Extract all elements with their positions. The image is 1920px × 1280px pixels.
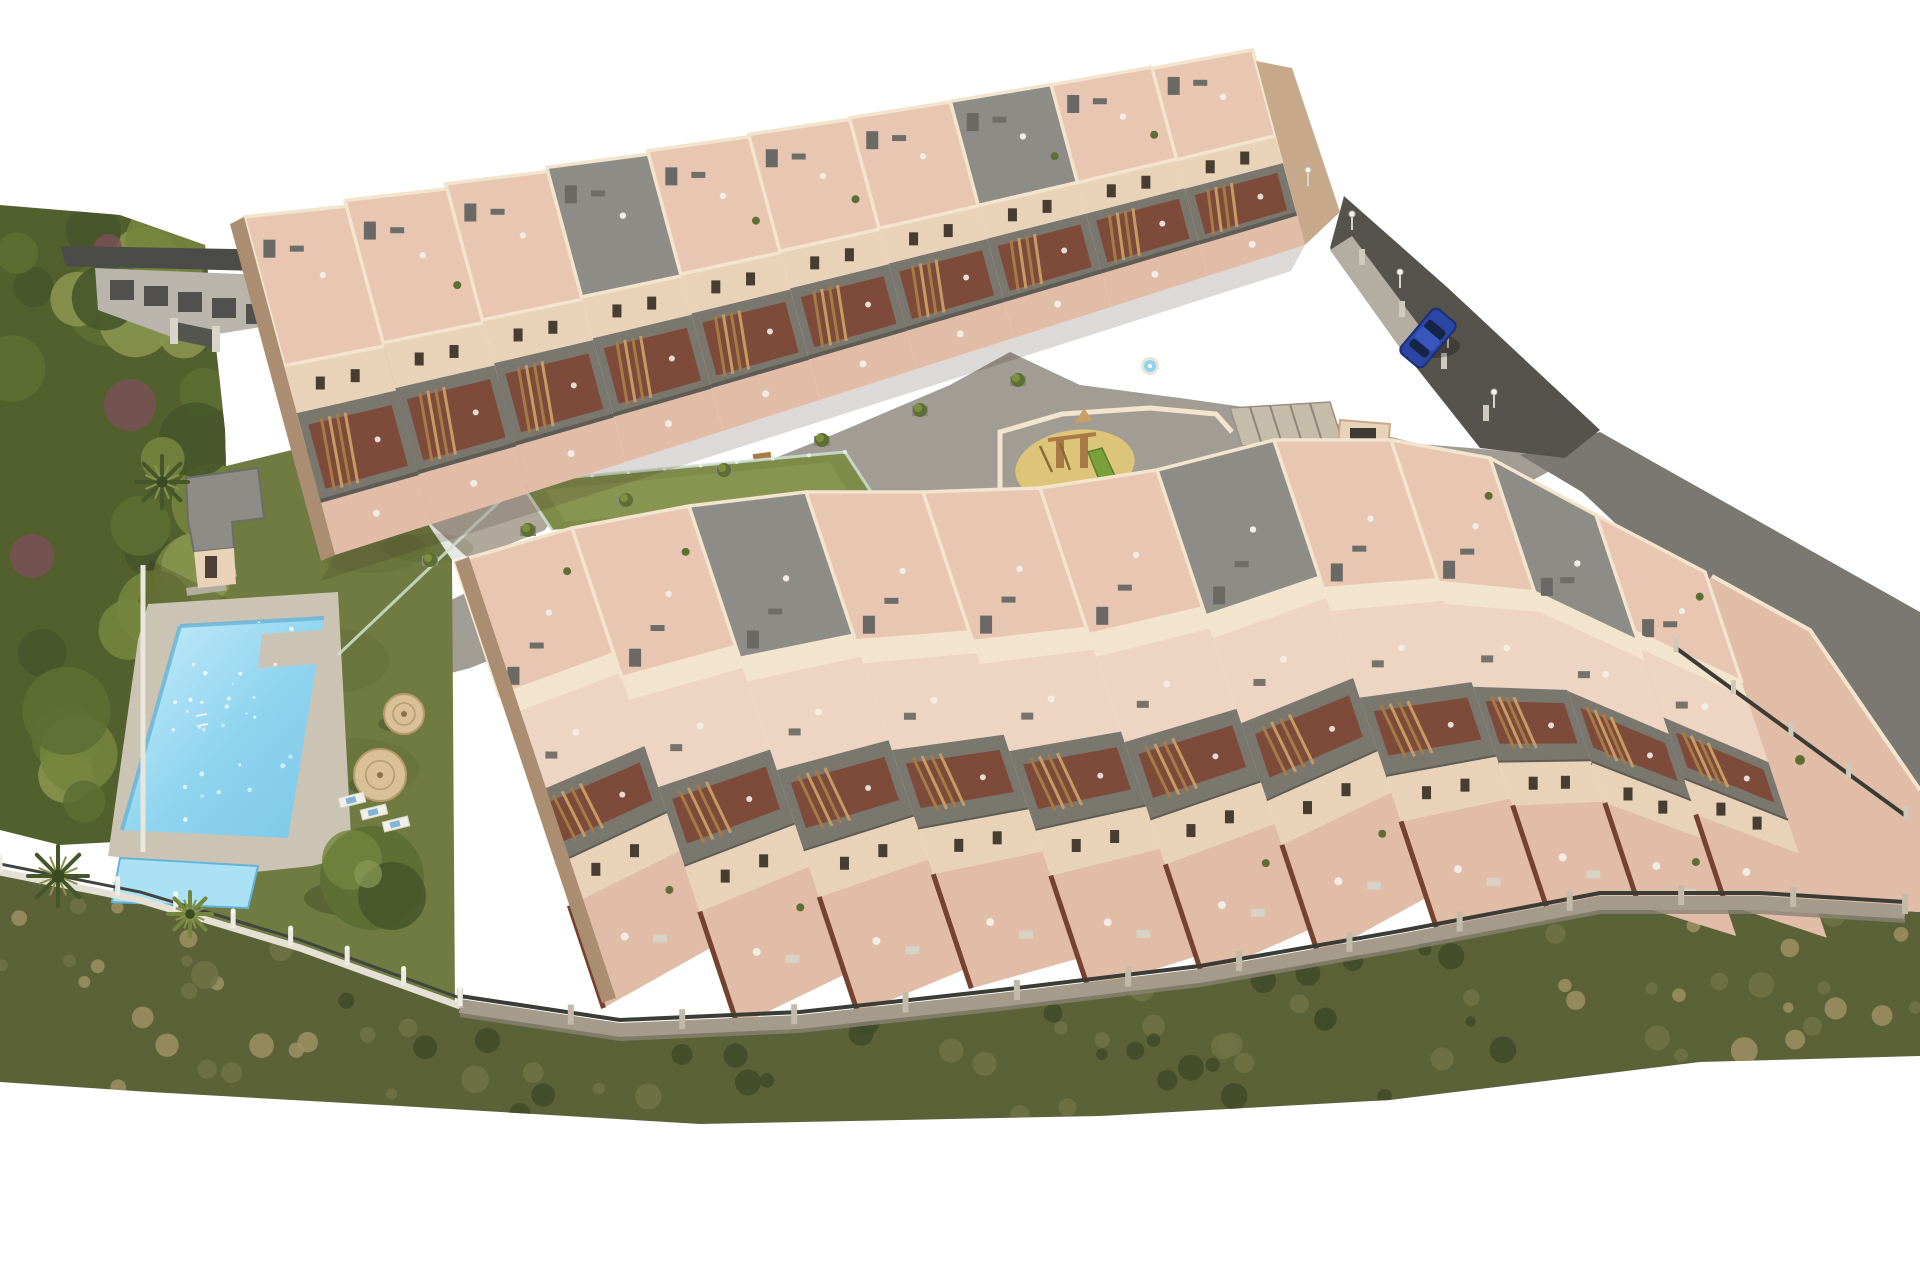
planter-shrub-light xyxy=(424,554,432,562)
scrub-tuft xyxy=(760,1073,774,1087)
perimeter-road xyxy=(1330,196,1600,458)
scrub-tuft xyxy=(509,1103,530,1124)
garden-furniture xyxy=(621,933,629,941)
terrace-plant xyxy=(796,903,804,911)
garden-furniture xyxy=(1137,930,1151,938)
sparkle xyxy=(289,627,294,632)
terrace-furniture xyxy=(1280,656,1287,663)
wall-post xyxy=(1678,885,1684,905)
roof-furniture xyxy=(1560,577,1574,583)
terrace-plant xyxy=(1378,830,1386,838)
window xyxy=(759,854,768,867)
roof-furniture xyxy=(1574,560,1580,566)
terrace-furniture xyxy=(697,723,704,730)
wall-post xyxy=(1902,894,1908,914)
garden-furniture xyxy=(872,937,880,945)
scrub-tuft xyxy=(1314,1010,1335,1031)
terrace-furniture xyxy=(1701,703,1708,710)
window xyxy=(316,377,325,390)
garden-furniture xyxy=(1652,862,1660,870)
roof-furniture xyxy=(1020,133,1026,139)
chimney xyxy=(866,131,878,149)
scrub-tuft xyxy=(78,976,90,988)
scrub-tuft xyxy=(1431,1047,1454,1070)
purple-shrub xyxy=(104,379,156,431)
balcony-furniture xyxy=(1212,753,1218,759)
window xyxy=(351,369,360,382)
roof-furniture xyxy=(320,272,326,278)
gate-pillar xyxy=(212,326,220,352)
palm-crown xyxy=(185,909,195,919)
sparkle xyxy=(280,763,285,768)
scrub-tuft xyxy=(531,1083,555,1107)
window xyxy=(1240,152,1249,165)
road-wall-post xyxy=(1359,249,1365,265)
chimney xyxy=(364,222,376,240)
scrub-tuft xyxy=(386,1088,397,1099)
scrub-tuft xyxy=(1234,1053,1254,1073)
roof-furniture xyxy=(1118,585,1132,591)
white-fence-post xyxy=(231,912,236,928)
right-fence-post xyxy=(1731,680,1736,694)
roof-furniture xyxy=(892,135,906,141)
palm-crown xyxy=(156,476,167,487)
scrub-tuft xyxy=(1058,1098,1076,1116)
wall-panel xyxy=(144,286,168,306)
window xyxy=(1422,786,1431,799)
window xyxy=(909,232,918,245)
terrace-furniture xyxy=(1503,645,1510,652)
window xyxy=(711,280,720,293)
patio-furniture xyxy=(859,360,866,367)
sparkle xyxy=(221,723,225,727)
terrace-furniture xyxy=(789,728,801,735)
wall-post xyxy=(1457,912,1463,932)
terrace-plant xyxy=(1692,858,1700,866)
post-cap xyxy=(115,876,120,881)
window xyxy=(514,328,523,341)
scrub-tuft xyxy=(132,1006,154,1028)
roof-furniture xyxy=(665,591,671,597)
terrace-furniture xyxy=(1602,671,1609,678)
sparkle xyxy=(247,788,252,793)
chimney xyxy=(565,185,577,203)
window xyxy=(810,256,819,269)
scrub-tuft xyxy=(1672,988,1686,1002)
planter-shrub-light xyxy=(914,404,922,412)
scrub-tuft xyxy=(635,1084,661,1110)
scrub-tuft xyxy=(1096,1048,1108,1060)
scrub-tuft xyxy=(1825,997,1847,1019)
sparkle xyxy=(203,671,207,675)
roof-furniture xyxy=(1235,561,1249,567)
roof-furniture xyxy=(1016,566,1022,572)
roof-plant xyxy=(1051,152,1059,160)
pool-house-door xyxy=(205,556,217,578)
white-fence-post xyxy=(288,929,293,945)
scrub-tuft xyxy=(1206,1058,1220,1072)
terrace-furniture xyxy=(1021,713,1033,720)
chimney xyxy=(629,649,641,667)
balcony-furniture xyxy=(1647,752,1653,758)
roof-plant xyxy=(1150,131,1158,139)
window xyxy=(944,224,953,237)
scrub-tuft xyxy=(1010,1105,1030,1125)
garden-furniture xyxy=(653,935,667,943)
street-lamp xyxy=(1397,269,1403,275)
wall-panel xyxy=(178,292,202,312)
scrub-tuft xyxy=(1566,991,1585,1010)
window xyxy=(415,352,424,365)
roof-furniture xyxy=(792,154,806,160)
terrace-plant xyxy=(1262,859,1270,867)
roof-plant xyxy=(1485,492,1493,500)
planter-shrub-light xyxy=(1012,374,1020,382)
window xyxy=(840,857,849,870)
sparkle xyxy=(188,698,192,702)
balcony-furniture xyxy=(865,301,871,307)
palm-tree xyxy=(168,892,212,936)
sparkle xyxy=(238,763,241,766)
chimney xyxy=(1067,95,1079,113)
pool-step xyxy=(258,630,322,668)
scrub-tuft xyxy=(11,910,27,926)
garden-furniture xyxy=(1454,865,1462,873)
scrub-tuft xyxy=(1558,979,1571,992)
garden-furniture xyxy=(786,955,800,963)
roof-plant xyxy=(752,217,760,225)
roof-furniture xyxy=(691,172,705,178)
sparkle xyxy=(225,705,229,709)
white-fence-post xyxy=(115,880,120,896)
window xyxy=(1008,208,1017,221)
garden-furniture xyxy=(905,946,919,954)
white-fence-post xyxy=(458,990,463,1006)
balcony-furniture xyxy=(571,382,577,388)
scrub-tuft xyxy=(1147,1033,1160,1046)
scrub-tuft xyxy=(1290,994,1309,1013)
balcony-furniture xyxy=(1159,221,1165,227)
terrace-furniture xyxy=(1372,660,1384,667)
roof-furniture xyxy=(1002,597,1016,603)
roof-furniture xyxy=(520,232,526,238)
glass-post xyxy=(735,460,739,464)
palm-tree xyxy=(136,456,188,508)
tree-blob xyxy=(22,667,110,755)
terrace-furniture xyxy=(1481,655,1493,662)
scrub-tuft xyxy=(1645,1025,1670,1050)
window xyxy=(591,863,600,876)
roof-furniture xyxy=(491,209,505,215)
sparkle xyxy=(183,785,187,789)
roof-furniture xyxy=(992,117,1006,123)
balcony-furniture xyxy=(746,796,752,802)
sparkle xyxy=(200,701,203,704)
planter-shrub-light xyxy=(620,494,628,502)
sparkle xyxy=(253,716,256,719)
sparkle xyxy=(227,697,231,701)
post-cap xyxy=(231,908,236,913)
chimney xyxy=(980,616,992,634)
road-wall-post xyxy=(1483,405,1489,421)
balcony-furniture xyxy=(619,792,625,798)
glass-post xyxy=(771,457,775,461)
wall-post xyxy=(903,992,909,1012)
right-fence-post xyxy=(1674,638,1679,652)
roof-furniture xyxy=(1367,516,1373,522)
scrub-tuft xyxy=(1465,1016,1475,1026)
garden-tree-glint xyxy=(354,860,382,888)
roof-furniture xyxy=(591,190,605,196)
scrub-tuft xyxy=(1781,939,1800,958)
roof-furniture xyxy=(620,212,626,218)
patio-furniture xyxy=(1249,241,1256,248)
window xyxy=(1658,801,1667,814)
window xyxy=(1110,830,1119,843)
balcony-furniture xyxy=(669,355,675,361)
scrub-tuft xyxy=(181,983,197,999)
window xyxy=(647,297,656,310)
sparkle xyxy=(173,700,177,704)
sparkle xyxy=(288,754,293,759)
garden-furniture xyxy=(753,948,761,956)
roof-furniture xyxy=(1472,523,1478,529)
roof-furniture xyxy=(1679,608,1685,614)
wall-panel xyxy=(212,298,236,318)
scrub-tuft xyxy=(155,1034,178,1057)
sparkle xyxy=(202,728,206,732)
patio-furniture xyxy=(1054,301,1061,308)
window xyxy=(630,844,639,857)
right-fence-post xyxy=(1846,764,1851,778)
balcony-furniture xyxy=(963,275,969,281)
post-cap xyxy=(401,966,406,971)
window xyxy=(1186,824,1195,837)
sparkle xyxy=(232,683,234,685)
roof-furniture xyxy=(546,609,552,615)
roof-furniture xyxy=(768,608,782,614)
window xyxy=(1716,803,1725,816)
balcony-furniture xyxy=(1257,194,1263,200)
sparkle xyxy=(252,696,255,699)
sparkle xyxy=(186,710,189,713)
garden-furniture xyxy=(1019,931,1033,939)
wall-post xyxy=(568,1005,574,1025)
white-fence-post xyxy=(345,949,350,965)
chimney xyxy=(863,616,875,634)
roof-furniture xyxy=(920,153,926,159)
post-cap xyxy=(345,946,350,951)
planter-shrub-light xyxy=(718,464,726,472)
scrub-tuft xyxy=(1157,1070,1178,1091)
roof-furniture xyxy=(820,173,826,179)
wall-post xyxy=(1567,891,1573,911)
wall-post xyxy=(1790,887,1796,907)
window xyxy=(1206,160,1215,173)
tree-blob xyxy=(63,780,105,822)
street-lamp xyxy=(1305,167,1311,173)
scrub-tuft xyxy=(972,1052,996,1076)
roof-plant xyxy=(453,281,461,289)
scrub-tuft xyxy=(249,1033,274,1058)
balcony-furniture xyxy=(1448,722,1454,728)
roof-furniture xyxy=(390,227,404,233)
garden-furniture xyxy=(1559,853,1567,861)
play-post xyxy=(1080,434,1088,468)
balcony-furniture xyxy=(375,436,381,442)
scrub-tuft xyxy=(1674,1049,1687,1062)
garden-furniture xyxy=(1104,918,1112,926)
aerial-complex-render xyxy=(0,0,1920,1280)
window xyxy=(993,831,1002,844)
balcony-furniture xyxy=(980,774,986,780)
balcony-furniture xyxy=(1548,722,1554,728)
scrub-tuft xyxy=(1817,981,1830,994)
window xyxy=(1107,184,1116,197)
scrub-tuft xyxy=(221,1062,242,1083)
window xyxy=(1225,810,1234,823)
window xyxy=(878,844,887,857)
scrub-tuft xyxy=(1748,972,1774,998)
window xyxy=(1043,200,1052,213)
wall-post xyxy=(1236,951,1242,971)
terrace-furniture xyxy=(545,752,557,759)
roof-furniture xyxy=(783,575,789,581)
glass-post xyxy=(699,463,703,467)
gate-pillar xyxy=(170,318,178,344)
wall-post xyxy=(1125,967,1131,987)
chimney xyxy=(1541,578,1553,596)
chimney xyxy=(967,113,979,131)
roof-plant xyxy=(1696,593,1704,601)
wall-post xyxy=(791,1004,797,1024)
terrace-furniture xyxy=(1137,701,1149,708)
chimney xyxy=(747,631,759,649)
roof-furniture xyxy=(1663,621,1677,627)
balcony-furniture xyxy=(1744,776,1750,782)
patio-furniture xyxy=(1151,271,1158,278)
patio-furniture xyxy=(665,420,672,427)
patio-furniture xyxy=(957,331,964,338)
chimney xyxy=(1213,586,1225,604)
chimney xyxy=(1096,607,1108,625)
scrub-tuft xyxy=(1785,1030,1805,1050)
balcony-furniture xyxy=(767,328,773,334)
scrub-tuft xyxy=(1044,1004,1063,1023)
chimney xyxy=(263,240,275,258)
chimney xyxy=(1331,563,1343,581)
hot-tub-jet xyxy=(1148,364,1152,368)
sparkle xyxy=(200,794,204,798)
scrub-tuft xyxy=(191,961,219,989)
scrub-tuft xyxy=(1646,982,1658,994)
right-fence-post xyxy=(1789,722,1794,736)
balcony-furniture xyxy=(473,409,479,415)
balcony-furniture xyxy=(865,785,871,791)
roof-furniture xyxy=(1093,98,1107,104)
scrub-tuft xyxy=(1490,1036,1517,1063)
scrub-tuft xyxy=(475,1028,500,1053)
balcony-furniture xyxy=(1329,726,1335,732)
roof-furniture xyxy=(720,193,726,199)
window xyxy=(1072,839,1081,852)
terrace-furniture xyxy=(1398,644,1405,651)
white-fence-post xyxy=(401,970,406,986)
roof-furniture xyxy=(290,246,304,252)
scrub-tuft xyxy=(1054,1021,1067,1034)
bay-wall xyxy=(1498,761,1604,805)
roof-furniture xyxy=(1193,80,1207,86)
street-lamp xyxy=(1491,389,1497,395)
garden-furniture xyxy=(1251,909,1265,917)
terrace-furniture xyxy=(1048,696,1055,703)
roof-plant xyxy=(682,548,690,556)
scrub-tuft xyxy=(461,1065,489,1093)
chimney xyxy=(1168,77,1180,95)
scrub-tuft xyxy=(1095,1032,1110,1047)
wall-post xyxy=(679,1009,685,1029)
scrub-tuft xyxy=(671,1044,692,1065)
roof-furniture xyxy=(1120,113,1126,119)
roof-furniture xyxy=(530,643,544,649)
terrace-furniture xyxy=(1163,681,1170,688)
roof-furniture xyxy=(1460,549,1474,555)
street-lamp xyxy=(1349,211,1355,217)
scrub-tuft xyxy=(91,959,105,973)
window xyxy=(1341,783,1350,796)
wall-panel xyxy=(110,280,134,300)
garden-furniture xyxy=(1334,877,1342,885)
scrub-tuft xyxy=(1221,1083,1247,1109)
scrub-tuft xyxy=(1178,1055,1204,1081)
terrace-furniture xyxy=(572,729,579,736)
umbrella-top xyxy=(401,711,407,717)
terrace-furniture xyxy=(1578,671,1590,678)
terrace-furniture xyxy=(670,744,682,751)
roof-furniture xyxy=(651,625,665,631)
scrub-tuft xyxy=(63,954,76,967)
garden-furniture xyxy=(1742,868,1750,876)
roof-furniture xyxy=(1133,552,1139,558)
scrub-tuft xyxy=(1545,924,1565,944)
window xyxy=(612,304,621,317)
chimney xyxy=(665,167,677,185)
window xyxy=(954,839,963,852)
balcony-furniture xyxy=(1097,773,1103,779)
scrub-tuft xyxy=(593,1083,605,1095)
purple-shrub xyxy=(10,534,54,578)
road-wall-post xyxy=(1399,301,1405,317)
chimney xyxy=(1443,561,1455,579)
balcony-furniture xyxy=(1061,248,1067,254)
window xyxy=(548,321,557,334)
right-fence-post xyxy=(1904,806,1909,820)
scrub-tuft xyxy=(338,993,354,1009)
sparkle xyxy=(217,790,221,794)
sparkle xyxy=(238,672,242,676)
roof-furniture xyxy=(420,252,426,258)
scrub-tuft xyxy=(1783,1002,1793,1012)
palm-tree xyxy=(28,846,88,906)
scrub-tuft xyxy=(70,898,86,914)
scrub-tuft xyxy=(1218,1032,1242,1056)
planter-shrub-light xyxy=(522,524,530,532)
scrub-tuft xyxy=(1894,927,1909,942)
garden-furniture xyxy=(1487,878,1501,886)
roof-furniture xyxy=(884,598,898,604)
patio-furniture xyxy=(568,450,575,457)
chimney xyxy=(1642,619,1654,637)
